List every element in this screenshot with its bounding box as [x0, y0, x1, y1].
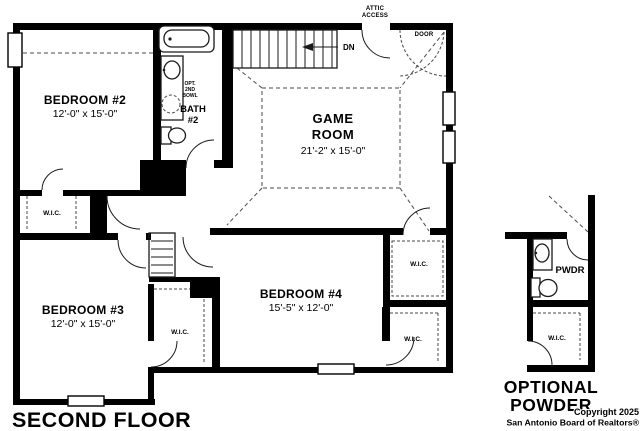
attic-access-door-swing	[362, 30, 390, 58]
bedroom3-window	[68, 396, 104, 406]
tray-corner-ne	[400, 32, 444, 88]
tray-corner-sw	[227, 188, 262, 225]
powder-fixtures	[531, 239, 557, 297]
bath2-label-line2: #2	[188, 115, 199, 126]
powder-label: PWDR	[555, 265, 584, 276]
closet-shelves	[27, 196, 580, 362]
detail-title-line1: OPTIONAL	[504, 377, 598, 397]
bedroom2-door-swing	[107, 196, 140, 229]
game-room-window-2	[443, 131, 455, 163]
sink-bowl	[164, 61, 180, 79]
bedroom3-door-swing	[118, 240, 146, 268]
floorplan-canvas: ATTIC ACCESS OPT. DOOR DN BEDROOM #2 12'…	[0, 0, 640, 431]
bedroom4-label: BEDROOM #4	[260, 287, 342, 301]
linen-closet	[149, 233, 175, 277]
sink-faucet	[163, 69, 166, 72]
attic-access-label-line2: ACCESS	[362, 13, 388, 19]
stairs-dn-label: DN	[343, 43, 355, 52]
bedroom2-label: BEDROOM #2	[44, 93, 126, 107]
bedroom4-window	[318, 364, 354, 374]
bath2-label-line1: BATH	[180, 104, 206, 115]
wic-left-label: W.I.C.	[43, 210, 61, 217]
wic-mid-label: W.I.C.	[171, 329, 189, 336]
powder-connector-line	[549, 196, 588, 232]
tray-corner-nw	[237, 68, 262, 88]
opt-door-label-line2: DOOR	[415, 32, 434, 38]
powder-sink-faucet	[535, 252, 537, 254]
wic-upper-right-label: W.I.C.	[410, 261, 428, 268]
powder-wic-label: W.I.C.	[548, 335, 566, 342]
game-room-closet-door-swing	[403, 208, 430, 235]
second-floor-plan: ATTIC ACCESS OPT. DOOR DN BEDROOM #2 12'…	[0, 0, 640, 431]
wic-lower-right-label: W.I.C.	[404, 336, 422, 343]
toilet-bowl	[169, 128, 186, 143]
tub-faucet	[168, 37, 171, 40]
powder-toilet-bowl	[539, 280, 557, 297]
powder-door-swing	[567, 239, 588, 260]
opt-door-label-line1: OPT.	[417, 25, 431, 31]
opt-bowl-label-line3: BOWL	[182, 93, 197, 99]
attic-access-label-line1: ATTIC	[366, 6, 385, 12]
game-room-label-line1: GAME	[313, 111, 354, 126]
bedroom4-door-swing	[183, 237, 213, 267]
copyright-line1: Copyright 2025	[574, 407, 639, 417]
wic-left-door-swing	[42, 169, 63, 190]
stairs-arrowhead	[302, 43, 313, 51]
bedroom3-label: BEDROOM #3	[42, 303, 124, 317]
game-room-window-1	[443, 92, 455, 125]
bedroom2-dims: 12'-0" x 15'-0"	[53, 108, 118, 120]
wic-mid-door-swing	[151, 341, 177, 367]
game-room-label-line2: ROOM	[312, 127, 354, 142]
powder-wic-door-swing	[528, 341, 552, 365]
bedroom3-dims: 12'-0" x 15'-0"	[51, 318, 116, 330]
walls	[13, 23, 595, 405]
tray-corner-se	[400, 188, 429, 231]
game-room-dims: 21'-2" x 15'-0"	[301, 145, 366, 157]
copyright-line2: San Antonio Board of Realtors®	[506, 418, 639, 428]
bedroom2-window	[8, 33, 22, 67]
bath2-door-swing	[186, 140, 214, 168]
floor-title: SECOND FLOOR	[12, 408, 191, 431]
bedroom4-dims: 15'-5" x 12'-0"	[269, 302, 334, 314]
wic-upper-right-shelf	[392, 241, 443, 296]
staircase	[233, 30, 338, 68]
